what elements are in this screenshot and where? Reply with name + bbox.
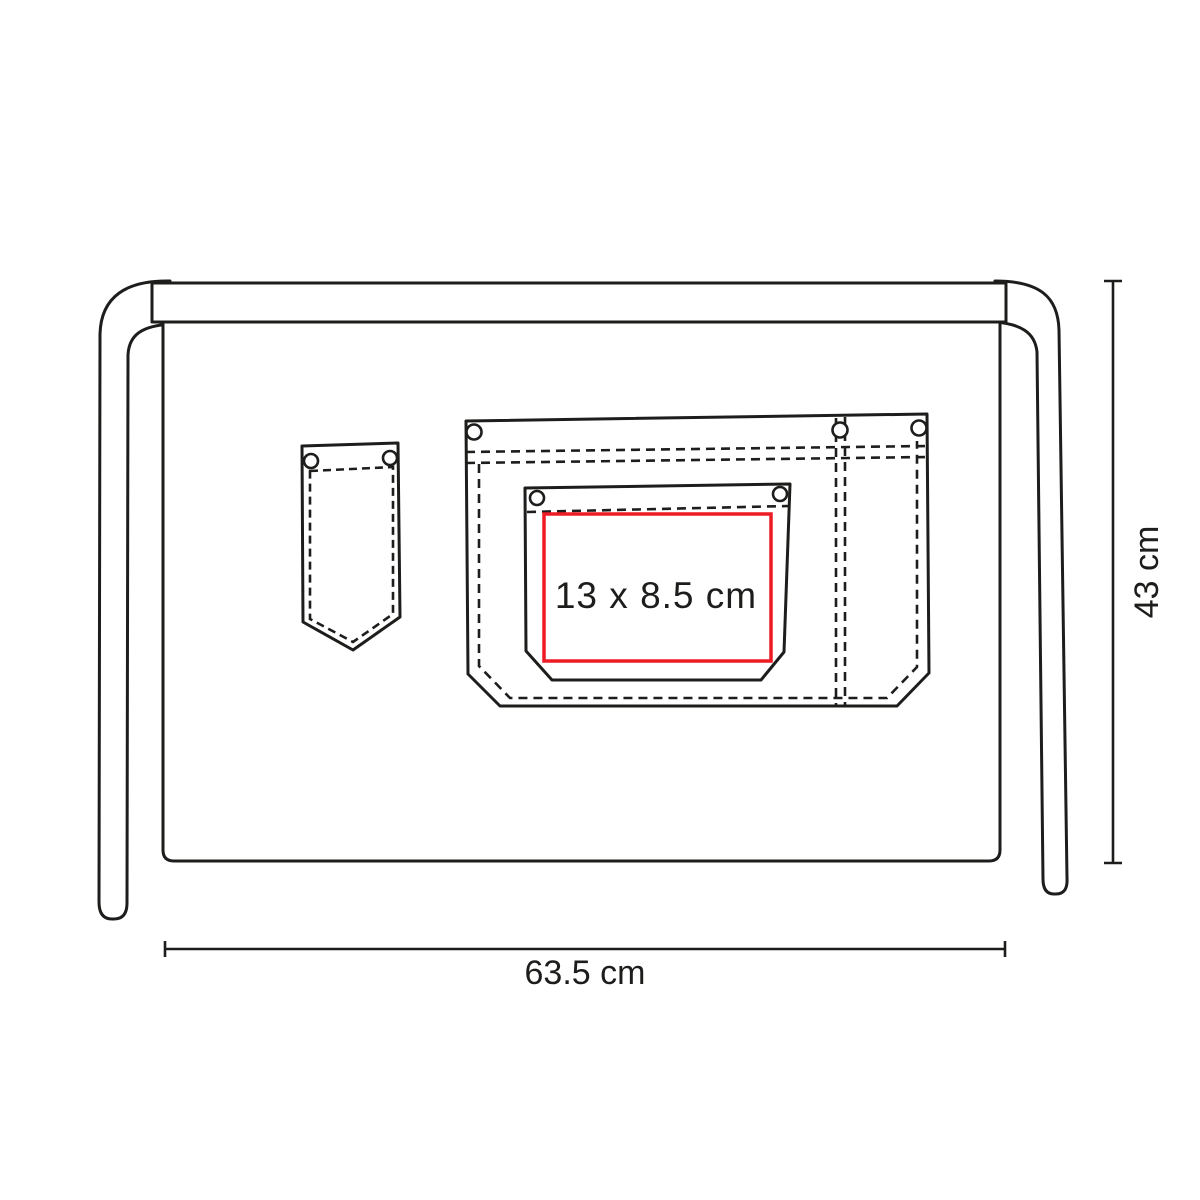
height-dimension: 43 cm — [1104, 281, 1166, 863]
right-tie-strap — [995, 281, 1067, 894]
snap-button — [912, 421, 927, 436]
height-dimension-line — [1104, 281, 1122, 863]
print-area-label: 13 x 8.5 cm — [555, 575, 757, 616]
snap-button — [530, 491, 544, 505]
apron-technical-drawing: 13 x 8.5 cm 63.5 cm 43 cm — [0, 0, 1200, 1200]
small-pocket — [302, 443, 400, 650]
snap-button — [833, 423, 848, 438]
snap-button — [773, 487, 787, 501]
inner-pocket: 13 x 8.5 cm — [525, 484, 790, 680]
diagram-canvas: 13 x 8.5 cm 63.5 cm 43 cm — [0, 0, 1200, 1200]
height-dimension-label: 43 cm — [1128, 526, 1166, 619]
snap-button — [383, 451, 397, 465]
apron-waistband — [152, 283, 1006, 322]
snap-button — [304, 454, 318, 468]
width-dimension-label: 63.5 cm — [525, 954, 646, 992]
left-tie-strap — [99, 281, 170, 919]
snap-button — [467, 425, 482, 440]
width-dimension: 63.5 cm — [165, 941, 1005, 992]
